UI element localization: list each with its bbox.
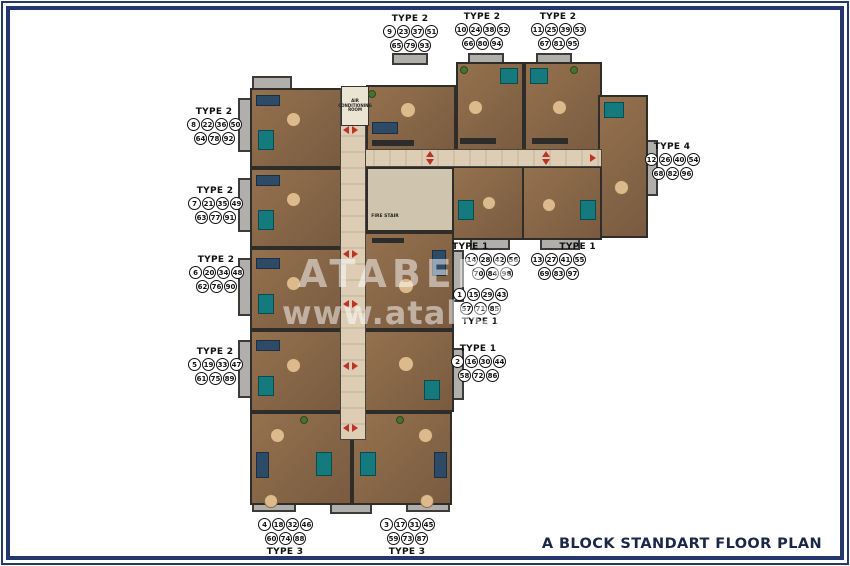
plant [460, 66, 468, 74]
table [552, 100, 567, 115]
unit-number: 3 [380, 518, 393, 531]
unit-number: 88 [293, 532, 306, 545]
unit-number: 63 [195, 211, 208, 224]
unit-number: 6 [189, 266, 202, 279]
unit-number: 19 [202, 358, 215, 371]
unit-number: 28 [479, 253, 492, 266]
unit-number: 43 [495, 288, 508, 301]
unit-number: 81 [552, 37, 565, 50]
unit-number: 17 [394, 518, 407, 531]
table [286, 276, 301, 291]
unit-number: 50 [229, 118, 242, 131]
type-label: TYPE 3 [389, 547, 426, 557]
unit-number: 25 [545, 23, 558, 36]
unit-number: 1 [453, 288, 466, 301]
bed [580, 200, 596, 220]
sofa [256, 95, 280, 106]
bed [258, 376, 274, 396]
unit-number: 2 [451, 355, 464, 368]
unit-label-group-top-3: TYPE 2 11253953678195 [526, 12, 590, 51]
unit-number: 93 [418, 39, 431, 52]
table [270, 428, 285, 443]
type-label: TYPE 2 [540, 12, 577, 22]
unit-numbers: 9233751657993 [382, 25, 438, 53]
type-label: TYPE 4 [654, 142, 691, 152]
unit-number: 38 [483, 23, 496, 36]
table [286, 112, 301, 127]
unit-number: 92 [222, 132, 235, 145]
unit-label-group-type3-right: TYPE 3 3173145597387 [375, 518, 439, 557]
unit-number: 57 [460, 302, 473, 315]
unit-number: 83 [552, 267, 565, 280]
bed [530, 68, 548, 84]
unit-number: 97 [566, 267, 579, 280]
corridor-vertical [340, 88, 366, 440]
unit-number: 33 [216, 358, 229, 371]
unit-number: 46 [300, 518, 313, 531]
type-label: TYPE 2 [197, 347, 234, 357]
unit-number: 45 [422, 518, 435, 531]
direction-arrow-icon [542, 159, 550, 165]
unit-label-group-top-1: TYPE 2 9233751657993 [378, 14, 442, 53]
plant [300, 416, 308, 424]
unit-label-group-type1-mid-left: TYPE 1 14284256708498 [464, 242, 528, 281]
bed [258, 130, 274, 150]
direction-arrow-icon [352, 300, 358, 308]
direction-arrow-icon [590, 154, 596, 162]
unit-numbers: 11253953678195 [530, 23, 586, 51]
unit-numbers: 4183246607488 [257, 518, 313, 546]
unit-number: 8 [187, 118, 200, 131]
unit-number: 70 [472, 267, 485, 280]
unit-number: 56 [507, 253, 520, 266]
unit-number: 80 [476, 37, 489, 50]
unit-numbers: 14284256708498 [464, 253, 520, 281]
unit-label-group-left-1: TYPE 2 8223650647892 [182, 107, 246, 146]
unit-label-group-left-3: TYPE 2 6203448627690 [184, 255, 248, 294]
unit-number: 68 [652, 167, 665, 180]
unit-number: 10 [455, 23, 468, 36]
unit-number: 64 [194, 132, 207, 145]
unit-number: 23 [397, 25, 410, 38]
sofa [432, 250, 446, 276]
direction-arrow-icon [352, 250, 358, 258]
unit-label-group-type4: TYPE 4 12264054688296 [640, 142, 704, 181]
unit-label-group-left-4: TYPE 2 5193347617589 [183, 347, 247, 386]
unit-label-group-top-2: TYPE 2 10243852668094 [450, 12, 514, 51]
unit-number: 74 [279, 532, 292, 545]
direction-arrow-icon [542, 151, 550, 157]
type-label: TYPE 2 [392, 14, 429, 24]
unit-number: 61 [195, 372, 208, 385]
unit-number: 58 [458, 369, 471, 382]
bed [500, 68, 518, 84]
unit-number: 42 [493, 253, 506, 266]
table [418, 428, 433, 443]
unit-number: 76 [210, 280, 223, 293]
unit-number: 91 [223, 211, 236, 224]
unit-number: 20 [203, 266, 216, 279]
unit-number: 5 [188, 358, 201, 371]
direction-arrow-icon [343, 250, 349, 258]
unit-numbers: 1152943577185 [452, 288, 508, 316]
unit-numbers: 8223650647892 [186, 118, 242, 146]
unit-number: 67 [538, 37, 551, 50]
type-label: TYPE 3 [267, 547, 304, 557]
unit-number: 30 [479, 355, 492, 368]
unit-label-group-type1-lower: TYPE 1 2163044587286 [446, 344, 510, 383]
unit-number: 82 [666, 167, 679, 180]
direction-arrow-icon [426, 151, 434, 157]
type-label: TYPE 1 [452, 242, 489, 252]
unit-number: 62 [196, 280, 209, 293]
table [542, 198, 556, 212]
unit-numbers: 13274155698397 [530, 253, 586, 281]
type-label: TYPE 2 [464, 12, 501, 22]
air-conditioning-room: AIR CONDITIONING ROOM [341, 86, 369, 126]
unit-numbers: 3173145597387 [379, 518, 435, 546]
table [614, 180, 629, 195]
unit-number: 95 [566, 37, 579, 50]
table [398, 278, 414, 294]
direction-arrow-icon [343, 424, 349, 432]
unit-number: 84 [486, 267, 499, 280]
table [398, 356, 414, 372]
unit-number: 39 [559, 23, 572, 36]
sofa [256, 340, 280, 351]
plant [368, 90, 376, 98]
plant [570, 66, 578, 74]
unit-number: 75 [209, 372, 222, 385]
bed [424, 380, 440, 400]
corridor-horizontal [358, 149, 602, 167]
bed [258, 294, 274, 314]
kitchen-counter [372, 140, 414, 146]
table [400, 102, 416, 118]
unit-number: 86 [486, 369, 499, 382]
unit-number: 55 [573, 253, 586, 266]
unit-number: 12 [645, 153, 658, 166]
unit-label-group-left-2: TYPE 2 7213549637791 [183, 186, 247, 225]
sofa [372, 122, 398, 134]
unit-numbers: 6203448627690 [188, 266, 244, 294]
kitchen-counter [532, 138, 568, 144]
unit-number: 9 [383, 25, 396, 38]
plant [396, 416, 404, 424]
bed [604, 102, 624, 118]
table [286, 358, 301, 373]
sofa [434, 452, 447, 478]
unit-number: 47 [230, 358, 243, 371]
unit-number: 7 [188, 197, 201, 210]
type-label: TYPE 1 [462, 317, 499, 327]
unit-label-group-type1-center: TYPE 1 1152943577185 [448, 288, 512, 327]
bed [316, 452, 332, 476]
direction-arrow-icon [426, 159, 434, 165]
unit-number: 32 [286, 518, 299, 531]
bed [458, 200, 474, 220]
sofa [256, 175, 280, 186]
unit-number: 53 [573, 23, 586, 36]
direction-arrow-icon [343, 300, 349, 308]
unit-numbers: 2163044587286 [450, 355, 506, 383]
unit-number: 52 [497, 23, 510, 36]
unit-number: 35 [216, 197, 229, 210]
unit-number: 96 [680, 167, 693, 180]
unit-number: 77 [209, 211, 222, 224]
unit-number: 18 [272, 518, 285, 531]
unit-number: 87 [415, 532, 428, 545]
unit-number: 36 [215, 118, 228, 131]
unit-number: 59 [387, 532, 400, 545]
kitchen-counter [460, 138, 496, 144]
bed [360, 452, 376, 476]
unit-number: 90 [224, 280, 237, 293]
building-core [366, 167, 454, 232]
bed [258, 210, 274, 230]
sofa [256, 452, 269, 478]
unit-number: 11 [531, 23, 544, 36]
unit-number: 27 [545, 253, 558, 266]
table [482, 196, 496, 210]
unit-numbers: 7213549637791 [187, 197, 243, 225]
balcony-table [264, 494, 278, 508]
unit-number: 26 [659, 153, 672, 166]
unit-number: 79 [404, 39, 417, 52]
direction-arrow-icon [352, 126, 358, 134]
balcony-table [420, 494, 434, 508]
unit-number: 78 [208, 132, 221, 145]
type-label: TYPE 2 [197, 186, 234, 196]
type-label: TYPE 1 [460, 344, 497, 354]
unit-number: 15 [467, 288, 480, 301]
unit-number: 89 [223, 372, 236, 385]
unit-number: 94 [490, 37, 503, 50]
unit-number: 29 [481, 288, 494, 301]
unit-number: 69 [538, 267, 551, 280]
unit-number: 14 [465, 253, 478, 266]
type-label: TYPE 1 [559, 242, 596, 252]
unit-number: 71 [474, 302, 487, 315]
direction-arrow-icon [343, 362, 349, 370]
page-title: A BLOCK STANDART FLOOR PLAN [542, 536, 822, 552]
unit-label-group-type1-mid-right: TYPE 1 13274155698397 [522, 242, 586, 281]
sofa [256, 258, 280, 269]
unit-number: 73 [401, 532, 414, 545]
unit-number: 40 [673, 153, 686, 166]
unit-number: 51 [425, 25, 438, 38]
unit-numbers: 10243852668094 [454, 23, 510, 51]
unit-number: 65 [390, 39, 403, 52]
unit-number: 49 [230, 197, 243, 210]
unit-numbers: 12264054688296 [644, 153, 700, 181]
direction-arrow-icon [352, 424, 358, 432]
unit-number: 72 [472, 369, 485, 382]
table [286, 192, 301, 207]
unit-number: 21 [202, 197, 215, 210]
direction-arrow-icon [352, 362, 358, 370]
unit-number: 31 [408, 518, 421, 531]
balcony [392, 53, 428, 65]
direction-arrow-icon [343, 126, 349, 134]
unit-number: 13 [531, 253, 544, 266]
unit-number: 24 [469, 23, 482, 36]
unit-number: 98 [500, 267, 513, 280]
unit-number: 4 [258, 518, 271, 531]
unit-numbers: 5193347617589 [187, 358, 243, 386]
type-label: TYPE 2 [198, 255, 235, 265]
unit-number: 34 [217, 266, 230, 279]
floor-plan-page: AIR CONDITIONING ROOM ELEVATOR ELEVATOR … [0, 0, 850, 566]
unit-number: 60 [265, 532, 278, 545]
unit-number: 48 [231, 266, 244, 279]
unit-number: 41 [559, 253, 572, 266]
unit-number: 44 [493, 355, 506, 368]
fire-stair-label: FIRE STAIR [368, 214, 402, 219]
unit-number: 37 [411, 25, 424, 38]
type-label: TYPE 2 [196, 107, 233, 117]
unit-number: 85 [488, 302, 501, 315]
unit-number: 16 [465, 355, 478, 368]
kitchen-counter [372, 238, 404, 243]
unit-number: 66 [462, 37, 475, 50]
unit-number: 22 [201, 118, 214, 131]
unit-label-group-type3-left: TYPE 3 4183246607488 [253, 518, 317, 557]
unit-number: 54 [687, 153, 700, 166]
table [468, 100, 483, 115]
